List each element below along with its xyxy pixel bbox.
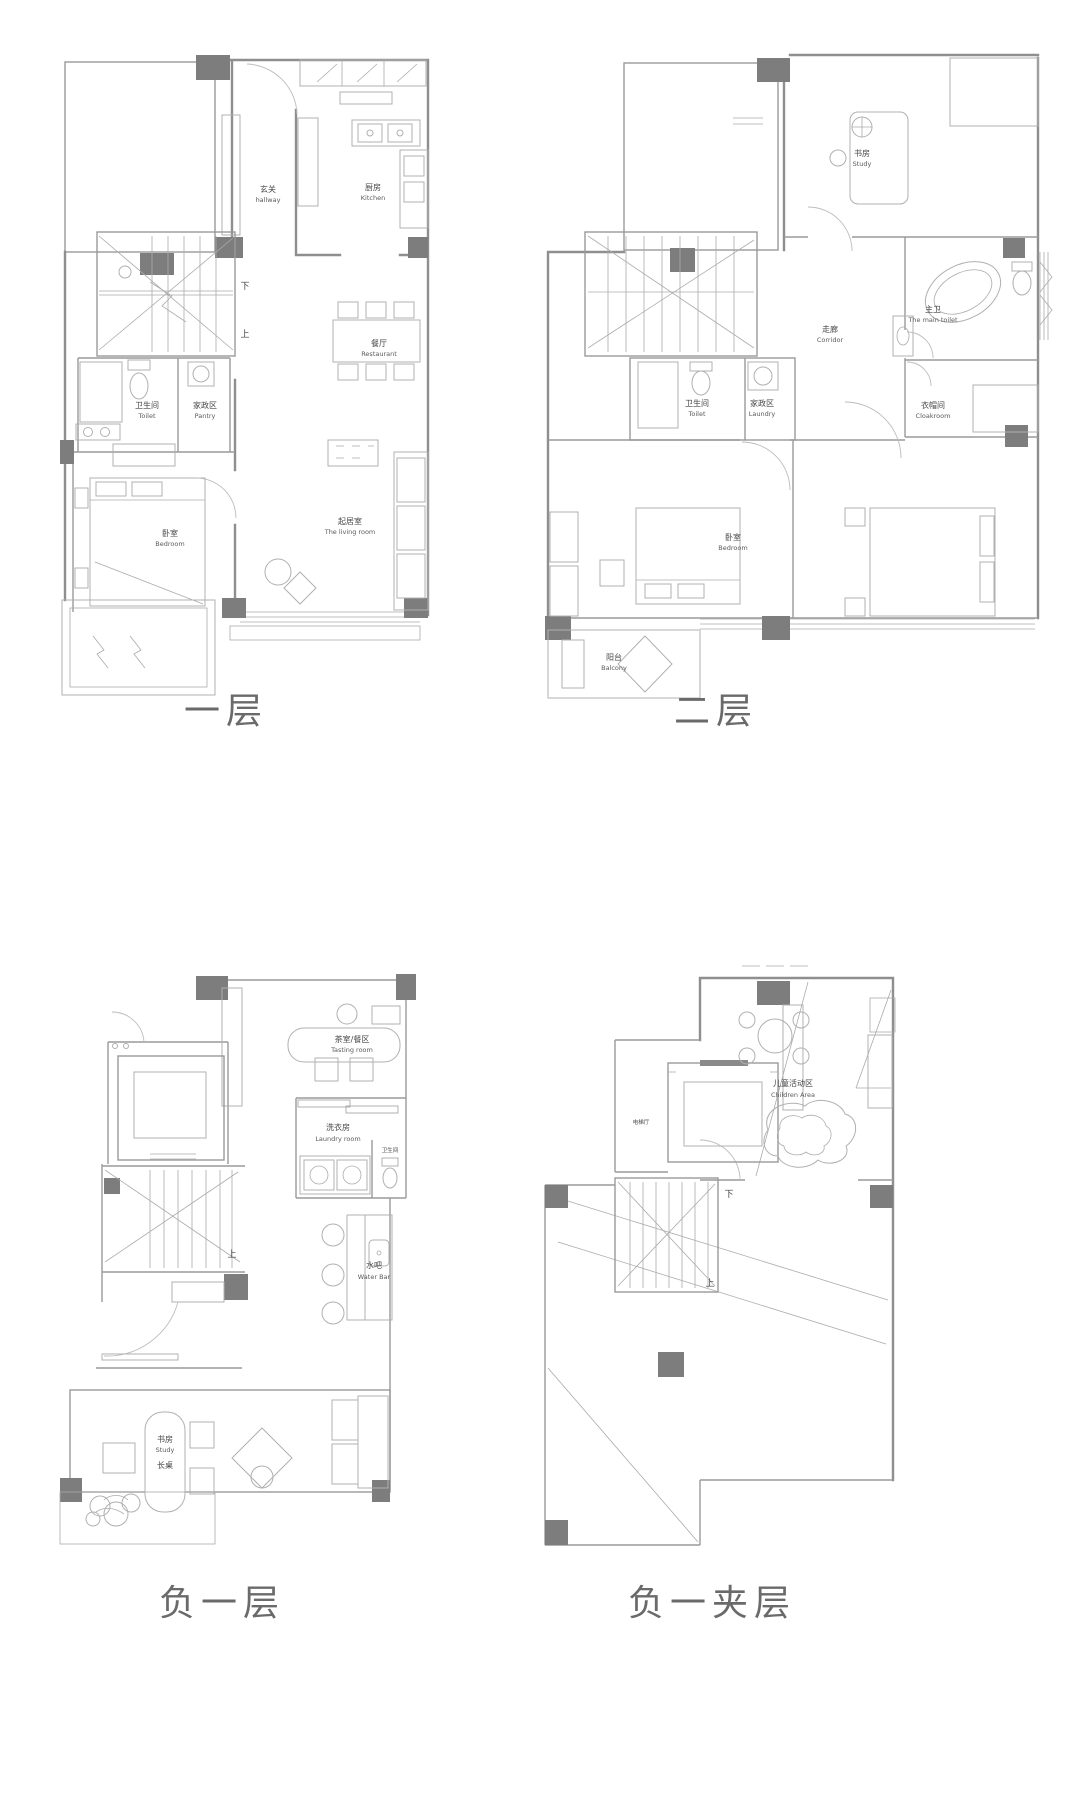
label-toilet-en: Toilet xyxy=(137,412,155,420)
label-balcony-en: Balcony xyxy=(601,664,627,672)
floorplan-floor1: 玄关 hallway 厨房 Kitchen 餐厅 Restaurant 卫生间 … xyxy=(55,25,440,705)
label-cloakroom-zh: 衣帽间 xyxy=(921,400,945,410)
laundry-room xyxy=(298,1100,398,1194)
stair-up-mark: 上 xyxy=(227,1249,236,1260)
label-kitchen-zh: 厨房 xyxy=(365,182,381,192)
label-elevator-zh: 电梯厅 xyxy=(633,1118,650,1126)
label-tasting-zh: 茶室/餐区 xyxy=(335,1034,370,1044)
laundry-nook xyxy=(188,362,214,386)
kitchen-fixtures xyxy=(300,60,428,228)
caption-basement: 负一层 xyxy=(82,1574,362,1626)
study-furniture xyxy=(808,58,1038,251)
study-furniture xyxy=(103,1396,388,1512)
label-study-b-en: Study xyxy=(156,1446,175,1454)
floorplan-sheet: { "captions": { "floor1": "一层", "floor2"… xyxy=(0,0,1080,1802)
floorplan-basement: 茶室/餐区 Tasting room 洗衣房 Laundry room 卫生间 … xyxy=(55,850,420,1550)
label-laundryroom-en: Laundry room xyxy=(315,1135,360,1143)
caption-floor2: 二层 xyxy=(576,682,856,734)
cloakroom xyxy=(907,362,1038,432)
label-hallway-zh: 玄关 xyxy=(260,184,276,194)
label-cloakroom-en: Cloakroom xyxy=(916,412,951,420)
label-laundry2-en: Laundry xyxy=(749,410,776,418)
label-balcony-zh: 阳台 xyxy=(606,652,622,662)
main-bath xyxy=(893,249,1052,358)
label-mainbath-zh: 主卫 xyxy=(925,304,941,314)
walls xyxy=(545,966,895,1545)
stair-up-mark: 上 xyxy=(705,1278,714,1289)
label-study-b-zh: 书房 xyxy=(157,1434,173,1444)
entry-door xyxy=(102,1302,178,1360)
label-kitchen-en: Kitchen xyxy=(361,194,385,202)
bedroom2-furniture xyxy=(845,402,995,616)
label-pantry-zh: 家政区 xyxy=(193,400,217,410)
label-dining-en: Restaurant xyxy=(361,350,397,358)
label-pantry-en: Pantry xyxy=(195,412,216,420)
roof-hatch xyxy=(950,58,1038,126)
label-hallway-en: hallway xyxy=(256,196,281,204)
bedroom1-door-arc xyxy=(742,442,790,490)
label-tasting-en: Tasting room xyxy=(330,1046,373,1054)
stairs xyxy=(102,1166,245,1268)
label-study-en: Study xyxy=(853,160,872,168)
stair-down-mark: 下 xyxy=(240,282,249,292)
label-waterbar-zh: 水吧 xyxy=(366,1260,382,1270)
label-bedroom-zh: 卧室 xyxy=(162,528,178,538)
label-children-en: Children Area xyxy=(771,1091,815,1099)
entry-door xyxy=(247,64,297,114)
bedroom1-furniture xyxy=(550,442,790,616)
label-toilet2-zh: 卫生间 xyxy=(685,398,709,408)
label-bedroom2f-zh: 卧室 xyxy=(725,532,741,542)
label-bedroom2f-en: Bedroom xyxy=(718,544,747,552)
window-strip xyxy=(700,619,1035,629)
label-bedroom-en: Bedroom xyxy=(155,540,184,548)
label-laundryroom-zh: 洗衣房 xyxy=(326,1122,350,1132)
label-laundry2-zh: 家政区 xyxy=(750,398,774,408)
floorplan-floor2: 书房 Study 走廊 Corridor 主卫 The main toilet … xyxy=(540,40,1060,710)
skylight xyxy=(870,998,895,1032)
caption-floor1: 一层 xyxy=(86,682,366,734)
caption-mezzanine: 负一夹层 xyxy=(572,1574,852,1626)
label-mainbath-en: The main toilet xyxy=(907,316,958,324)
label-living-zh: 起居室 xyxy=(338,516,362,526)
label-toilet2-en: Toilet xyxy=(687,410,705,418)
label-living-en: The living room xyxy=(324,528,376,536)
study-door-arc xyxy=(808,207,852,251)
plant xyxy=(60,1492,215,1544)
children-area xyxy=(739,1012,856,1167)
label-longtable-zh: 长桌 xyxy=(157,1460,173,1470)
label-toilet-zh: 卫生间 xyxy=(135,400,159,410)
stair-up-mark: 上 xyxy=(240,329,249,340)
window-strip xyxy=(240,612,420,622)
toilet-room xyxy=(76,360,150,440)
label-waterbar-en: Water Bar xyxy=(358,1273,391,1281)
stair-down-mark: 下 xyxy=(724,1190,733,1200)
bedroom2-door-arc xyxy=(845,402,901,458)
elevator xyxy=(112,1012,224,1160)
label-wc-zh: 卫生间 xyxy=(382,1146,399,1154)
label-children-zh: 儿童活动区 xyxy=(773,1078,813,1088)
label-dining-zh: 餐厅 xyxy=(371,339,387,348)
label-study-zh: 书房 xyxy=(854,148,870,158)
stairs xyxy=(615,1178,718,1292)
floorplan-mezzanine: 电梯厅 儿童活动区 Children Area 下 上 xyxy=(535,850,910,1550)
label-corridor-zh: 走廊 xyxy=(822,324,838,334)
label-corridor-en: Corridor xyxy=(817,336,844,344)
